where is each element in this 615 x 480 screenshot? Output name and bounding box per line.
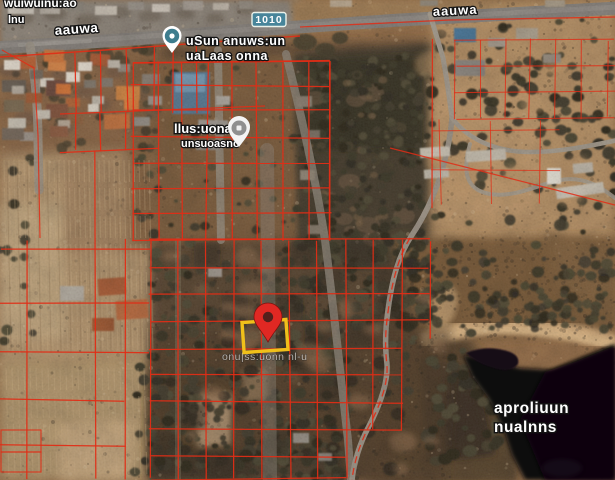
svg-text:aauwa: aauwa xyxy=(432,2,477,19)
svg-text:nualnns: nualnns xyxy=(494,419,557,436)
svg-text:unsuoasno: unsuoasno xyxy=(181,138,240,150)
svg-text:wuiwuinu:ao: wuiwuinu:ao xyxy=(3,0,77,10)
svg-text:uaLaas onna: uaLaas onna xyxy=(186,49,268,63)
svg-text:aauwa: aauwa xyxy=(54,20,99,38)
svg-text:llus:uona: llus:uona xyxy=(174,121,233,136)
svg-text:1010: 1010 xyxy=(255,14,282,26)
svg-text:onu|ss:uonn nl-u: onu|ss:uonn nl-u xyxy=(222,351,307,363)
svg-text:lnu: lnu xyxy=(8,14,25,26)
svg-text:aproliuun: aproliuun xyxy=(494,400,569,417)
svg-text:uSun anuws:un: uSun anuws:un xyxy=(186,34,286,48)
